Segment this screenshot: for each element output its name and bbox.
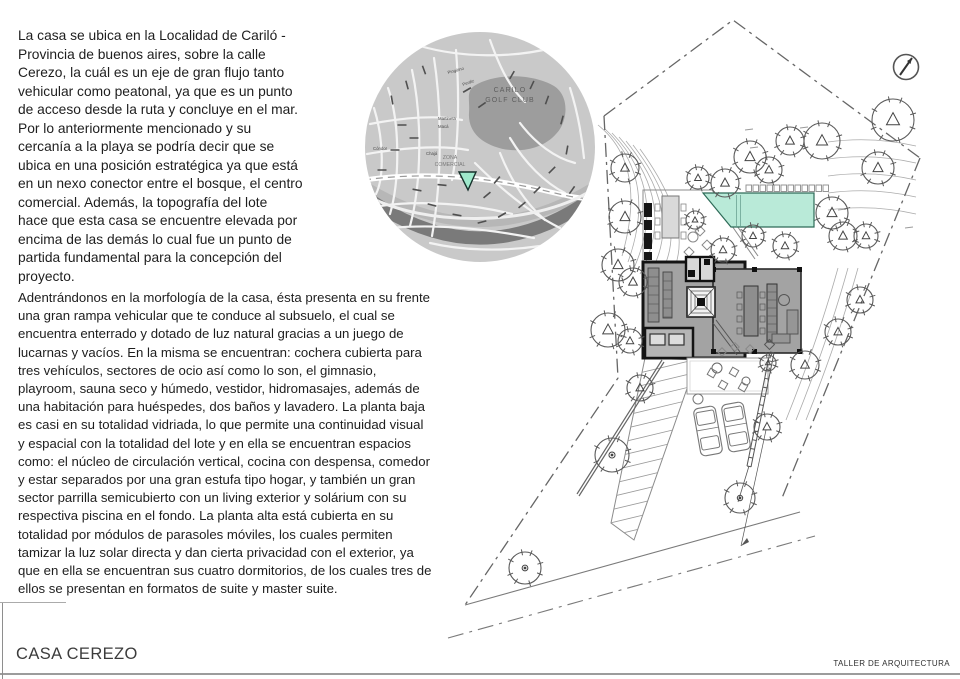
tree-icon xyxy=(733,138,769,175)
outdoor-table xyxy=(662,196,679,238)
tree-icon xyxy=(771,231,799,260)
tree-icon xyxy=(845,284,875,315)
studio-name: TALLER DE ARQUITECTURA xyxy=(833,659,950,668)
tree-icon xyxy=(608,198,644,235)
project-title: CASA CEREZO xyxy=(16,645,138,664)
tree-icon xyxy=(685,164,711,191)
car xyxy=(693,405,723,456)
presentation-sheet: La casa se ubica en la Localidad de Cari… xyxy=(0,0,960,679)
pool xyxy=(703,193,814,227)
street-name-label: Cóndor xyxy=(373,146,388,151)
tree-icon xyxy=(852,221,880,250)
car xyxy=(721,401,751,452)
street-edge xyxy=(465,512,800,605)
footer-rule xyxy=(0,673,960,675)
tree-icon xyxy=(871,96,916,143)
tree-icon xyxy=(861,149,897,186)
street-centerline xyxy=(448,536,815,638)
tree-icon xyxy=(601,246,637,283)
pergola-ticks xyxy=(746,185,829,192)
title-block-corner-line xyxy=(0,602,66,603)
site-plan xyxy=(440,0,960,645)
intro-paragraph-1: La casa se ubica en la Localidad de Cari… xyxy=(18,27,370,286)
stair-core xyxy=(687,287,715,317)
tree-icon xyxy=(815,194,851,231)
tree-icon xyxy=(684,208,707,231)
north-arrow-icon xyxy=(888,48,924,84)
tree-icon xyxy=(508,549,544,586)
tree-icon xyxy=(723,480,757,515)
house-floor-plan xyxy=(643,257,802,358)
title-block-corner-line xyxy=(2,603,3,679)
tree-icon xyxy=(774,124,806,157)
tree-icon xyxy=(590,310,628,349)
street-name-label: Chajá xyxy=(426,151,438,156)
